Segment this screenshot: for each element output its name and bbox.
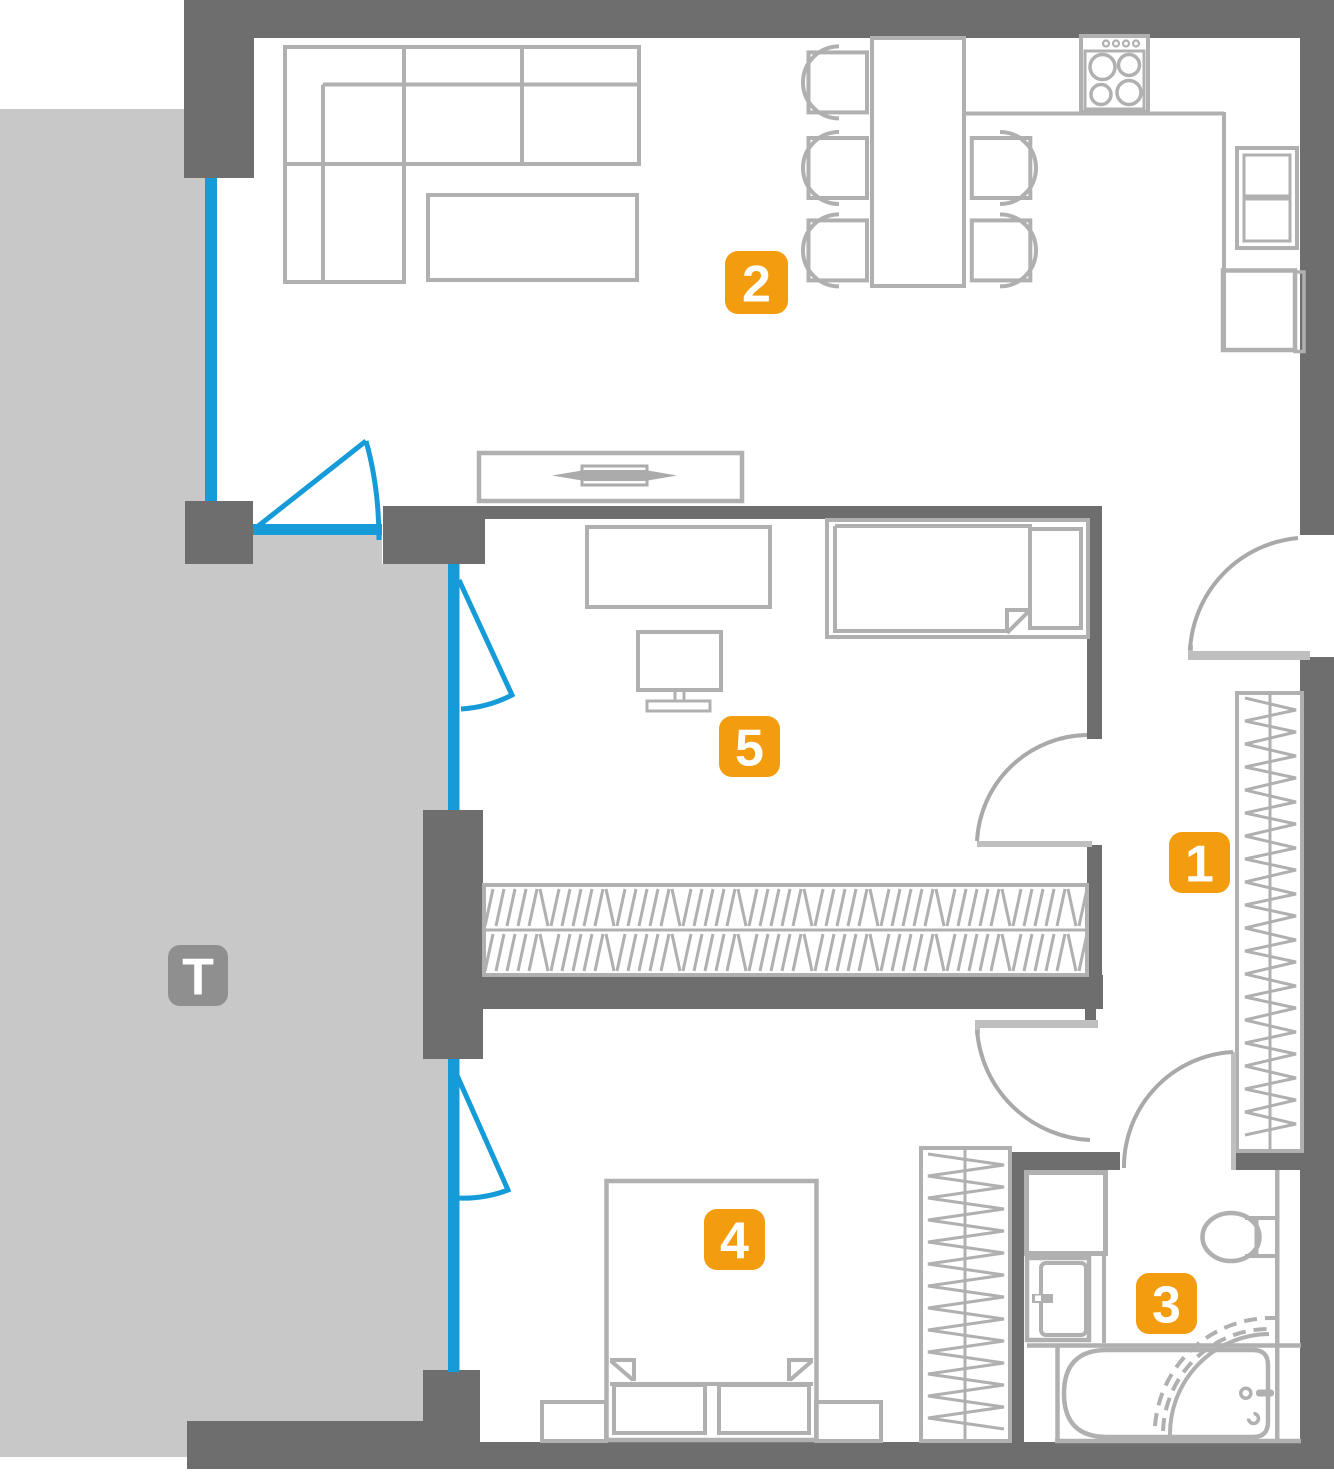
svg-text:2: 2	[742, 256, 771, 314]
svg-text:3: 3	[1152, 1277, 1181, 1335]
svg-text:T: T	[182, 949, 214, 1007]
svg-text:5: 5	[735, 720, 764, 778]
svg-text:1: 1	[1185, 836, 1214, 894]
svg-text:4: 4	[720, 1213, 749, 1271]
